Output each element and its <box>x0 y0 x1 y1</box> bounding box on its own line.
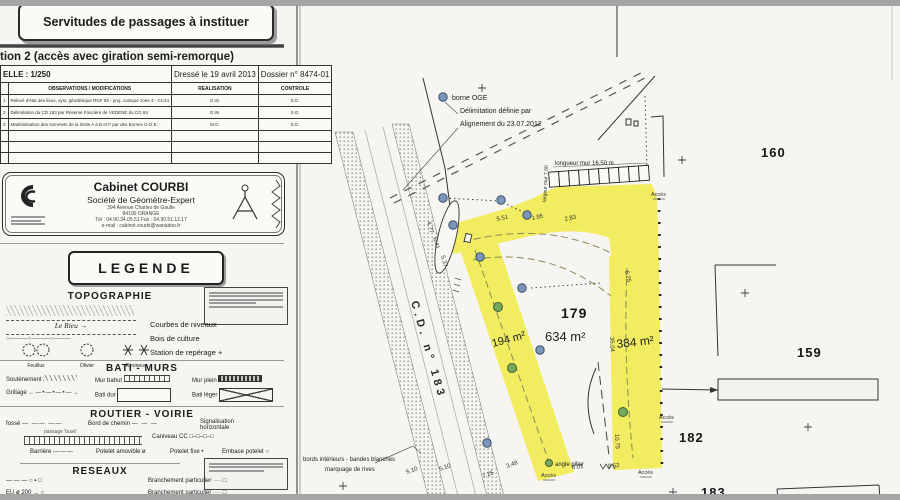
dimension-label: 35.04 <box>608 337 615 353</box>
empty-row <box>1 153 332 164</box>
map-annotation: Délimitation définie par <box>460 108 532 115</box>
empty-row <box>1 142 332 153</box>
parcel-number: 179 <box>561 305 587 321</box>
borne-marker-icon <box>449 221 457 229</box>
caniveau-swatch: □–□–□–□ <box>189 434 214 440</box>
grid-cross-icon <box>678 156 686 164</box>
firm-subtitle: Société de Géomètre-Expert <box>63 195 219 205</box>
firm-name: Cabinet COURBI <box>63 180 219 194</box>
obs-header: OBSERVATIONS / MODIFICATIONS <box>8 83 171 95</box>
grid-cross-icon <box>804 423 812 431</box>
signalisation-item: Signalisation horizontale <box>200 419 234 431</box>
table-row: 3 Matérialisation des sommets de la limi… <box>1 119 332 131</box>
mur-bahut-label: Mur bahut <box>95 378 122 384</box>
dossier-cell: Dossier n° 8474-01 <box>258 66 332 83</box>
bati-dur-label: Bati dur <box>95 393 116 399</box>
dotted-boundary <box>645 96 647 168</box>
signalisation-label-2: horizontale <box>200 425 234 431</box>
grillage-swatch: ←—•—•—•—→ <box>28 390 79 396</box>
wall-segment <box>559 171 570 187</box>
table-row: 1 Relevé d'état des lieux, syst. géodési… <box>1 95 332 107</box>
firm-icon-block <box>219 180 271 229</box>
reseau-line-swatch: — — — ○ ▪ □ <box>6 478 42 484</box>
drawing-info-table: ELLE : 1/250 Dressé le 19 avril 2013 Dos… <box>0 65 332 164</box>
table-row: 2 Délimitation du CD 183 par Réserve Fon… <box>1 107 332 119</box>
soutenement-label: Soutènement <box>6 377 42 383</box>
obs-cell: Matérialisation des sommets de la limite… <box>8 119 171 131</box>
scanned-survey-plan: Servitudes de passages à instituer tion … <box>0 0 900 500</box>
boundary-arc-182 <box>588 368 596 434</box>
parcel-number: 182 <box>679 430 704 445</box>
tree-marker-icon <box>546 460 553 467</box>
parcel-number: 159 <box>797 345 822 360</box>
building-corner-right <box>715 265 776 356</box>
bati-murs-title: BATI - MURS <box>0 360 284 374</box>
reseaux-title: RESEAUX <box>20 463 180 477</box>
title-and-legend-panel: Servitudes de passages à instituer tion … <box>0 0 292 500</box>
firm-text-block: Cabinet COURBI Société de Géomètre-Exper… <box>63 180 219 229</box>
wall-segment <box>549 172 560 188</box>
access-label: Accès <box>651 192 666 198</box>
access-label: Accès <box>541 473 556 479</box>
grid-cross-icon <box>339 482 347 490</box>
map-annotation: marquage de rives <box>325 467 375 473</box>
row-num: 1 <box>1 95 9 107</box>
solution-subtitle: tion 2 (accès avec giration semi-remorqu… <box>0 51 284 63</box>
wall-segment <box>579 169 590 185</box>
scan-edge-top <box>0 0 900 6</box>
hatch-marks <box>453 278 461 292</box>
tree-marker-icon <box>494 303 503 312</box>
bord-chemin-label: Bord de chemin <box>88 421 130 427</box>
wall-segment <box>569 170 580 186</box>
mur-plein-swatch <box>218 375 262 382</box>
building-rect-159 <box>718 379 878 400</box>
potelet-amovible-item: Potelet amovible ø <box>96 449 146 455</box>
obs-cell: Relevé d'état des lieux, syst. géodésiqu… <box>8 95 171 107</box>
wall-segment <box>638 165 649 181</box>
cadastral-plan-map: AccèsAccèsAccèsAccès4.776.415.375.511.95… <box>295 0 900 500</box>
deciduous-tree-icon <box>21 343 51 358</box>
parcel-area-label: 634 m² <box>545 329 586 344</box>
topographie-title: TOPOGRAPHIE <box>20 291 200 302</box>
leader-to-building <box>662 389 718 390</box>
wall-segment <box>589 169 600 185</box>
bois-culture-item: Bois de culture <box>150 334 200 343</box>
small-structure <box>634 121 638 126</box>
real-cell: G.W. <box>171 107 258 119</box>
controle-header: CONTROLE <box>258 83 332 95</box>
station-reperage-item: Station de repérage + <box>150 348 222 357</box>
caniveau-label: Caniveau CC <box>152 434 188 440</box>
empty-row <box>1 131 332 142</box>
borne-marker-icon <box>439 194 447 202</box>
grid-cross-icon <box>478 84 486 92</box>
legend-title: LEGENDE <box>98 260 194 276</box>
realisation-header: REALISATION <box>171 83 258 95</box>
map-annotation: Alignement du 23.07.2012 <box>460 121 542 128</box>
map-annotation: bords intérieurs - bandes blanches <box>303 457 395 463</box>
wall-segment <box>608 167 619 183</box>
bati-leger-swatch <box>219 388 273 402</box>
grillage-item: Grillage ←—•—•—•—→ <box>6 390 80 396</box>
building-corner-topright <box>651 116 664 177</box>
alignment-dashed-line <box>394 75 651 203</box>
caniveau-item: Caniveau CC □–□–□–□ <box>152 434 214 440</box>
borne-marker-icon <box>476 253 484 261</box>
tree-marker-icon <box>619 408 628 417</box>
borne-leader-line <box>445 102 458 114</box>
real-cell: M.G. <box>171 119 258 131</box>
branchement-item-1: Branchement particulier ···· □ <box>148 478 226 484</box>
barriere-swatch: ——— <box>53 449 74 455</box>
date-cell: Dressé le 19 avril 2013 <box>171 66 258 83</box>
soutenement-swatch <box>43 375 77 381</box>
mur-plein-label: Mur plein <box>192 378 217 384</box>
row-num-header <box>1 83 9 95</box>
courbes-niveaux-item: Courbes de niveaux <box>150 320 217 329</box>
row-num: 3 <box>1 119 9 131</box>
fosse-item: fossé — —— —— <box>6 421 62 427</box>
real-cell: G.W. <box>171 95 258 107</box>
access-label: Accès <box>638 470 653 476</box>
borne-marker-icon <box>497 196 505 204</box>
barriere-item: Barrière ——— <box>30 449 74 455</box>
mur-plein-item: Mur plein <box>192 375 262 384</box>
courbi-logo-icon <box>9 182 43 210</box>
dimension-label: 10.75 <box>613 434 620 450</box>
legend-title-box: LEGENDE <box>68 251 224 285</box>
boundary-line-topright <box>598 76 655 140</box>
routier-voirie-title: ROUTIER - VOIRIE <box>0 406 284 420</box>
tree-marker-icon <box>508 364 517 373</box>
small-structure <box>626 119 631 125</box>
ctrl-cell: S.G. <box>258 119 332 131</box>
fosse-swatch: — —— —— <box>22 421 62 427</box>
stream-legend-item: Le Rieu → <box>6 320 136 335</box>
potelet-fixe-item: Potelet fixe • <box>170 449 203 455</box>
dotted-boundary <box>531 283 600 288</box>
wall-segment <box>628 166 639 182</box>
leader-arrowhead <box>710 387 718 393</box>
olive-tree-icon <box>80 343 95 358</box>
map-annotation: angle pilier <box>555 462 584 468</box>
stream-label: Le Rieu → <box>55 321 88 330</box>
grid-cross-icon <box>741 289 749 297</box>
divider <box>0 243 284 244</box>
squiggle-icon <box>271 178 281 230</box>
borne-marker-icon <box>483 439 491 447</box>
bord-chemin-swatch: — — — <box>132 421 158 427</box>
row-num: 2 <box>1 107 9 119</box>
access-label: Accès <box>659 415 674 421</box>
bati-leger-label: Bati léger <box>192 393 217 399</box>
masonry-wall <box>549 165 650 187</box>
ctrl-cell: S.G. <box>258 95 332 107</box>
small-structure <box>464 233 472 242</box>
wall-segment <box>618 167 629 183</box>
mur-bahut-item: Mur bahut <box>95 375 170 384</box>
fence-line-swatch: ○———○———○——— <box>6 336 71 342</box>
topo-limits-swatch <box>6 305 134 316</box>
dimension-label: 3.48 <box>506 460 520 470</box>
wall-segment <box>599 168 610 184</box>
borne-marker-icon <box>439 93 447 101</box>
bord-chemin-item: Bord de chemin — — — <box>88 421 158 427</box>
dimension-label: 5.10 <box>406 466 420 476</box>
reseaux-note-box <box>204 458 288 490</box>
obs-cell: Délimitation du CD 183 par Réserve Fonci… <box>8 107 171 119</box>
firm-email: e-mail : cabinet.courbi@wanadoo.fr <box>63 223 219 229</box>
borne-marker-icon <box>536 346 544 354</box>
passage-buse-label: passage 'busé' <box>44 429 77 435</box>
servitudes-title-box: Servitudes de passages à instituer <box>18 3 274 41</box>
scan-edge-bottom <box>0 494 900 500</box>
bati-leger-item: Bati léger <box>192 388 273 402</box>
parcel-number: 160 <box>761 145 786 160</box>
divider <box>0 44 284 48</box>
map-annotation: longueur mur 16.50 m <box>555 161 614 167</box>
conifer-tree-icon <box>120 343 152 358</box>
borne-marker-icon <box>518 284 526 292</box>
ctrl-cell: S.G. <box>258 107 332 119</box>
servitudes-title: Servitudes de passages à instituer <box>43 15 249 29</box>
bati-dur-swatch <box>117 388 171 402</box>
passage-buse-swatch <box>24 436 142 445</box>
soutenement-item: Soutènement <box>6 375 77 383</box>
embase-potelet-item: Embase potelet ○ <box>222 449 269 455</box>
surveyor-firm-box: Cabinet COURBI Société de Géomètre-Exper… <box>2 172 285 236</box>
scale-cell: ELLE : 1/250 <box>1 66 172 83</box>
fosse-label: fossé <box>6 421 20 427</box>
theodolite-tripod-icon <box>225 180 265 224</box>
map-annotation: borne OGE <box>452 95 488 102</box>
dashed-boundary-182 <box>598 362 609 456</box>
borne-marker-icon <box>523 211 531 219</box>
barriere-label: Barrière <box>30 449 51 455</box>
dimension-label: 9.52 <box>608 463 621 470</box>
servitude-strip-194 <box>452 217 574 481</box>
firm-logo-block <box>3 182 63 227</box>
bati-dur-item: Bati dur <box>95 388 171 402</box>
mur-bahut-swatch <box>124 375 170 382</box>
grillage-label: Grillage <box>6 390 27 396</box>
